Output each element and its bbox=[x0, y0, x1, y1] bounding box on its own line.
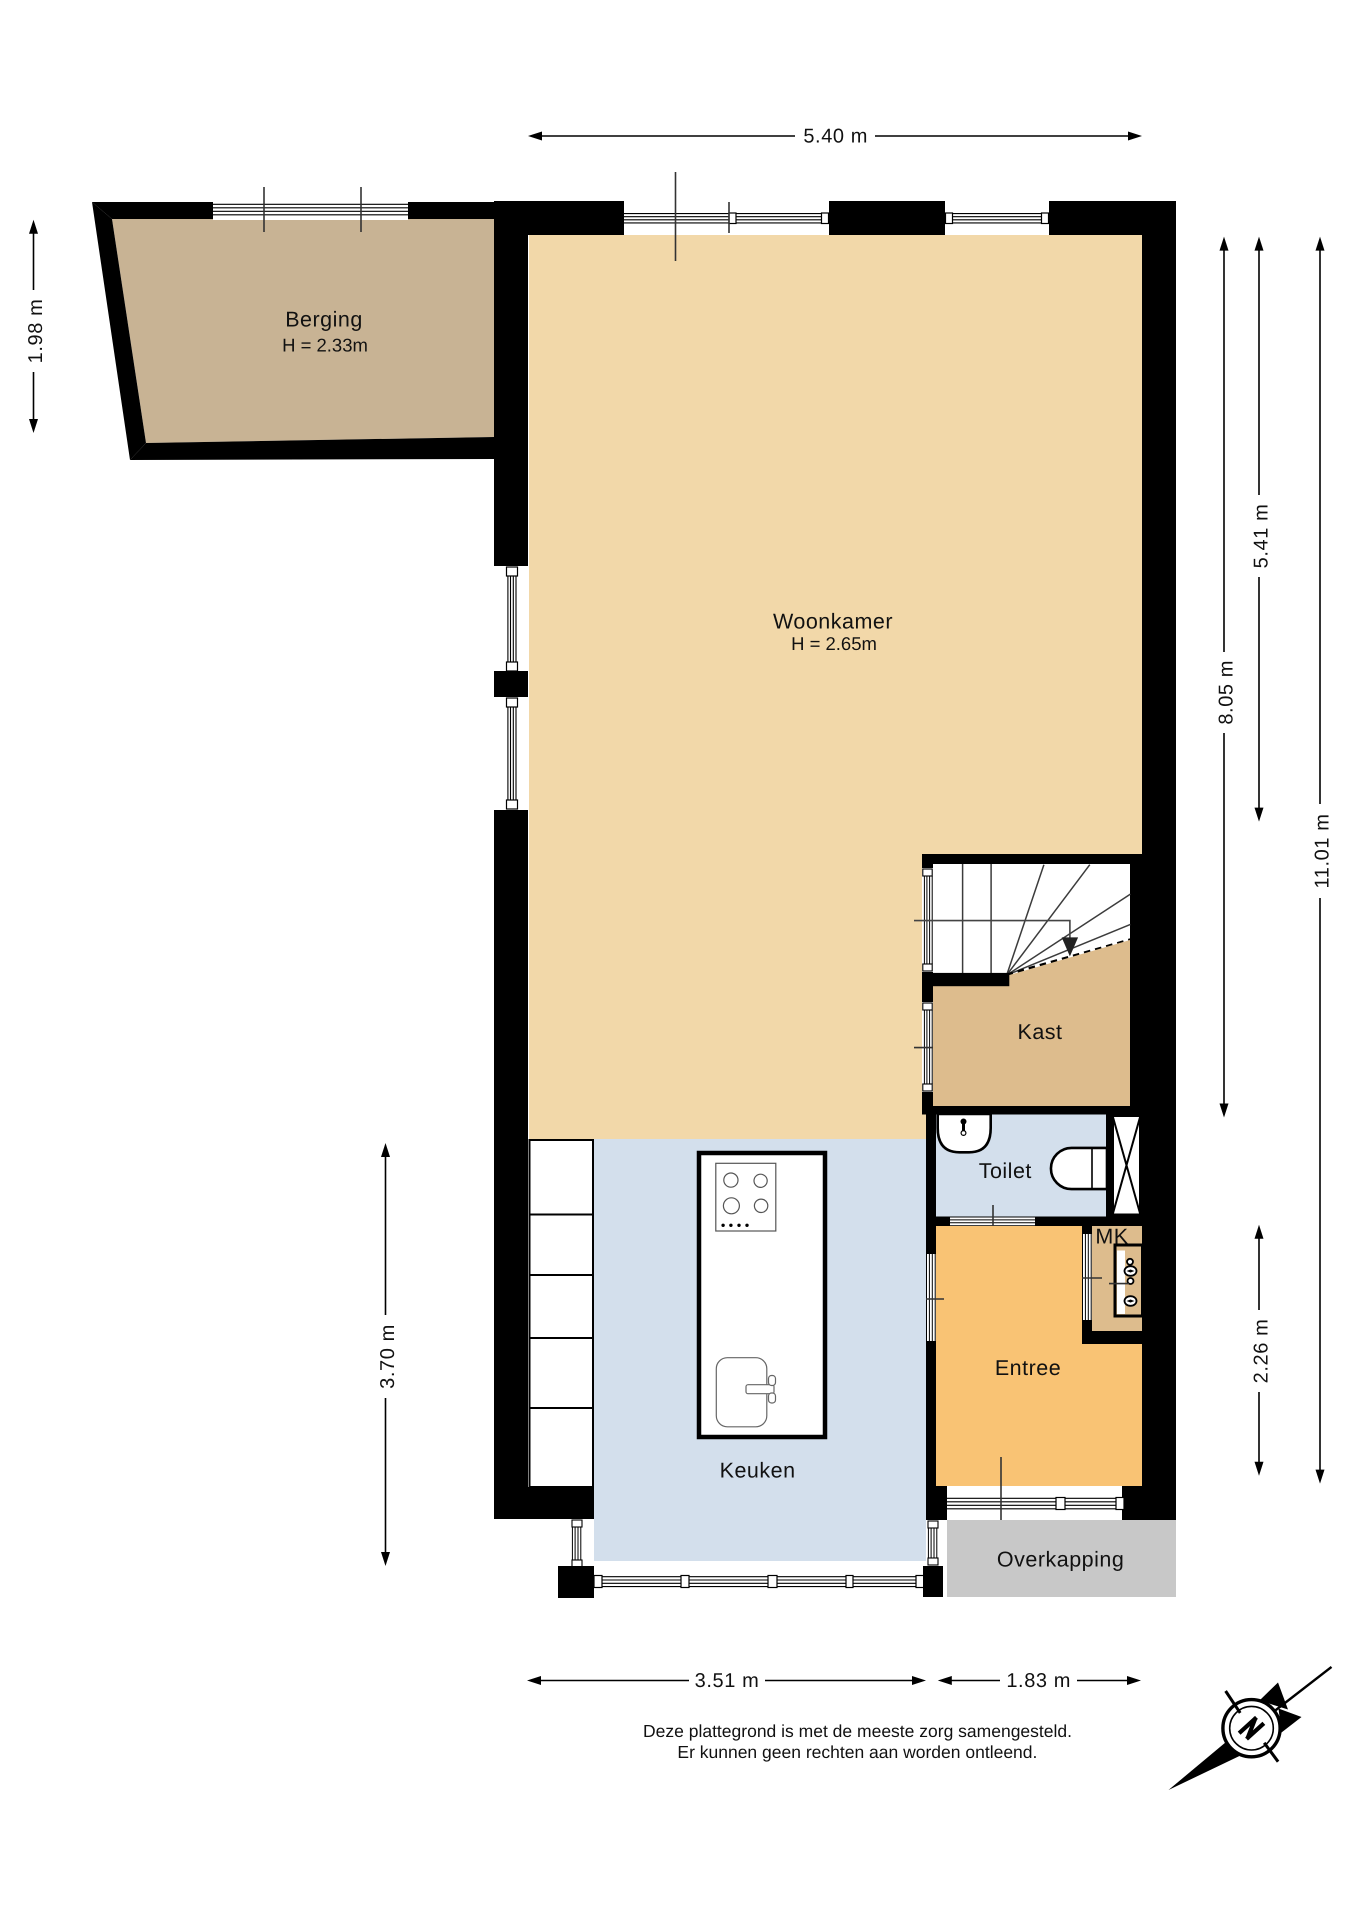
svg-text:H = 2.65m: H = 2.65m bbox=[791, 633, 877, 654]
svg-text:MK: MK bbox=[1095, 1225, 1128, 1249]
svg-text:3.70 m: 3.70 m bbox=[377, 1324, 399, 1389]
svg-text:11.01 m: 11.01 m bbox=[1312, 814, 1334, 889]
svg-text:H = 2.33m: H = 2.33m bbox=[282, 335, 368, 356]
svg-text:5.40 m: 5.40 m bbox=[803, 126, 868, 148]
svg-text:Keuken: Keuken bbox=[720, 1459, 796, 1483]
svg-text:Berging: Berging bbox=[285, 308, 363, 332]
svg-text:Entree: Entree bbox=[995, 1356, 1061, 1380]
svg-text:Deze plattegrond is met de mee: Deze plattegrond is met de meeste zorg s… bbox=[643, 1721, 1072, 1741]
svg-text:2.26 m: 2.26 m bbox=[1251, 1319, 1273, 1384]
svg-text:Er kunnen geen rechten aan wor: Er kunnen geen rechten aan worden ontlee… bbox=[677, 1742, 1037, 1762]
svg-text:Overkapping: Overkapping bbox=[997, 1548, 1124, 1572]
svg-text:5.41 m: 5.41 m bbox=[1251, 504, 1273, 569]
svg-text:1.83 m: 1.83 m bbox=[1006, 1670, 1071, 1692]
svg-text:3.51 m: 3.51 m bbox=[695, 1670, 760, 1692]
svg-text:Woonkamer: Woonkamer bbox=[773, 610, 893, 634]
svg-text:Kast: Kast bbox=[1017, 1020, 1062, 1044]
svg-text:Toilet: Toilet bbox=[979, 1159, 1032, 1183]
svg-text:1.98 m: 1.98 m bbox=[25, 299, 47, 364]
svg-text:8.05 m: 8.05 m bbox=[1216, 660, 1238, 725]
